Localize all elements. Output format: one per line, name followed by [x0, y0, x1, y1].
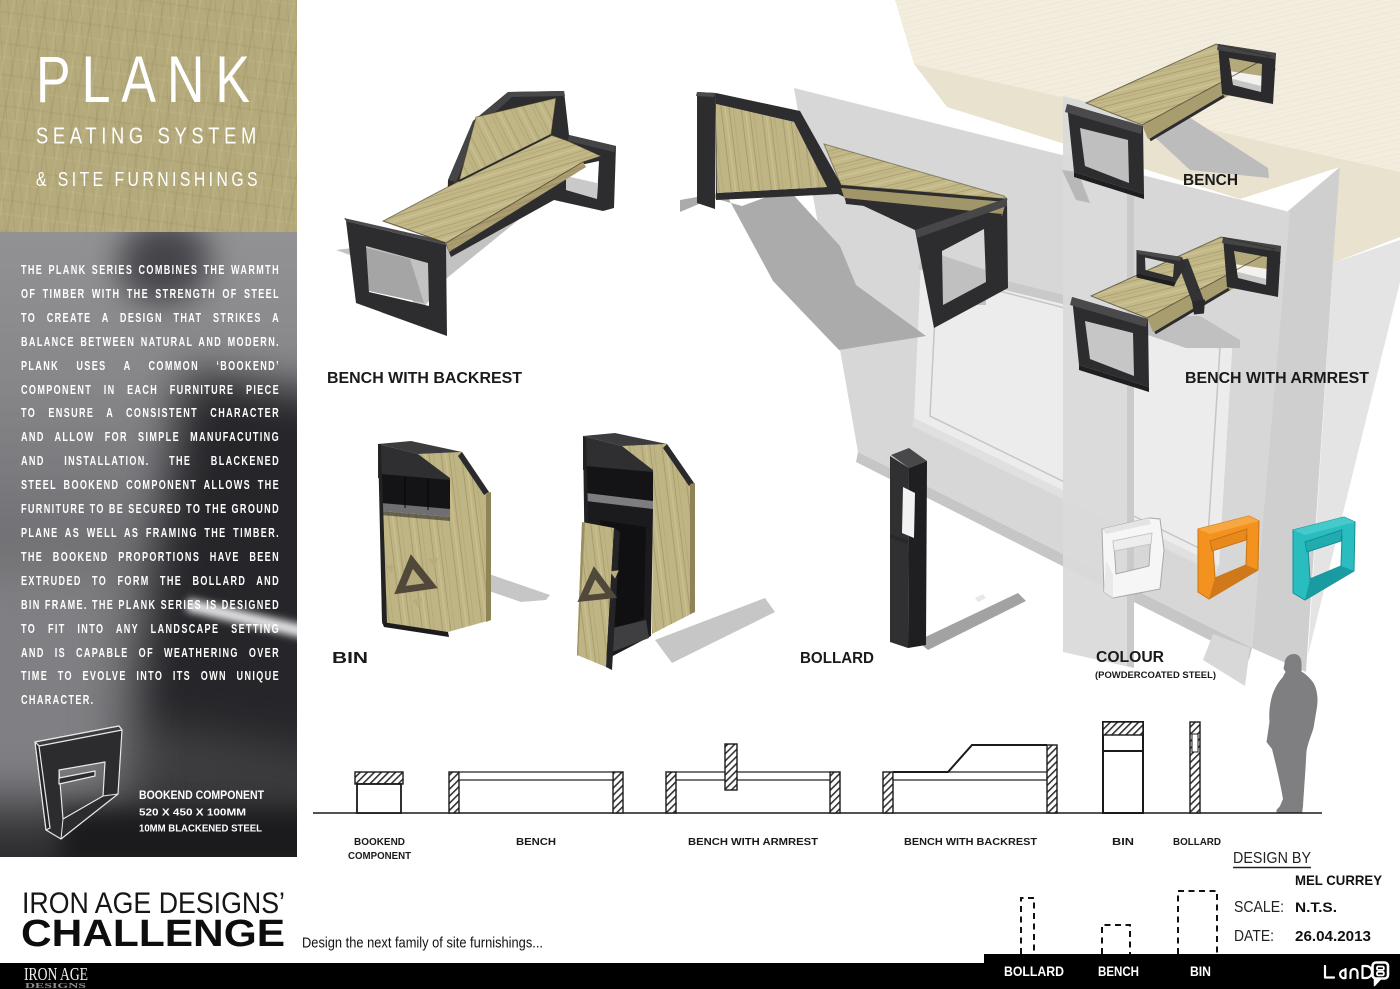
svg-text:Design the next family of site: Design the next family of site furnishin… — [302, 936, 543, 952]
svg-text:(POWDERCOATED STEEL): (POWDERCOATED STEEL) — [1095, 670, 1216, 681]
svg-text:BOLLARD: BOLLARD — [1004, 963, 1064, 979]
svg-text:BENCH: BENCH — [1098, 963, 1139, 979]
svg-text:BENCH WITH BACKREST: BENCH WITH BACKREST — [327, 370, 522, 387]
svg-text:BENCH WITH BACKREST: BENCH WITH BACKREST — [904, 837, 1037, 848]
svg-text:PLANK: PLANK — [36, 42, 261, 116]
svg-text:BOLLARD: BOLLARD — [800, 650, 874, 667]
svg-text:DESIGN BY: DESIGN BY — [1233, 850, 1311, 867]
svg-text:N.T.S.: N.T.S. — [1295, 899, 1337, 915]
svg-text:MEL CURREY: MEL CURREY — [1295, 872, 1383, 888]
svg-text:SCALE:: SCALE: — [1234, 899, 1284, 916]
svg-text:520 X 450 X 100MM: 520 X 450 X 100MM — [139, 808, 246, 819]
svg-text:COMPONENT: COMPONENT — [348, 851, 411, 862]
svg-text:BENCH: BENCH — [516, 837, 556, 848]
svg-text:BIN: BIN — [332, 650, 368, 667]
svg-text:BENCH WITH ARMREST: BENCH WITH ARMREST — [688, 837, 818, 848]
svg-text:CHALLENGE: CHALLENGE — [21, 913, 285, 955]
svg-text:BIN: BIN — [1112, 837, 1134, 848]
svg-text:BOOKEND: BOOKEND — [354, 837, 405, 848]
svg-text:COLOUR: COLOUR — [1096, 649, 1164, 666]
svg-text:& SITE FURNISHINGS: & SITE FURNISHINGS — [36, 168, 261, 191]
svg-text:SEATING SYSTEM: SEATING SYSTEM — [36, 123, 261, 149]
svg-text:BOOKEND COMPONENT: BOOKEND COMPONENT — [139, 790, 264, 802]
svg-text:10MM BLACKENED STEEL: 10MM BLACKENED STEEL — [139, 824, 262, 835]
svg-text:BIN: BIN — [1190, 963, 1211, 979]
svg-text:BOLLARD: BOLLARD — [1173, 837, 1221, 848]
svg-text:BENCH: BENCH — [1183, 172, 1238, 189]
svg-text:26.04.2013: 26.04.2013 — [1295, 929, 1371, 945]
svg-text:DESIGNS: DESIGNS — [25, 982, 86, 989]
svg-text:IRON AGE: IRON AGE — [24, 964, 88, 984]
svg-text:DATE:: DATE: — [1234, 928, 1274, 945]
svg-text:BENCH WITH ARMREST: BENCH WITH ARMREST — [1185, 370, 1369, 387]
